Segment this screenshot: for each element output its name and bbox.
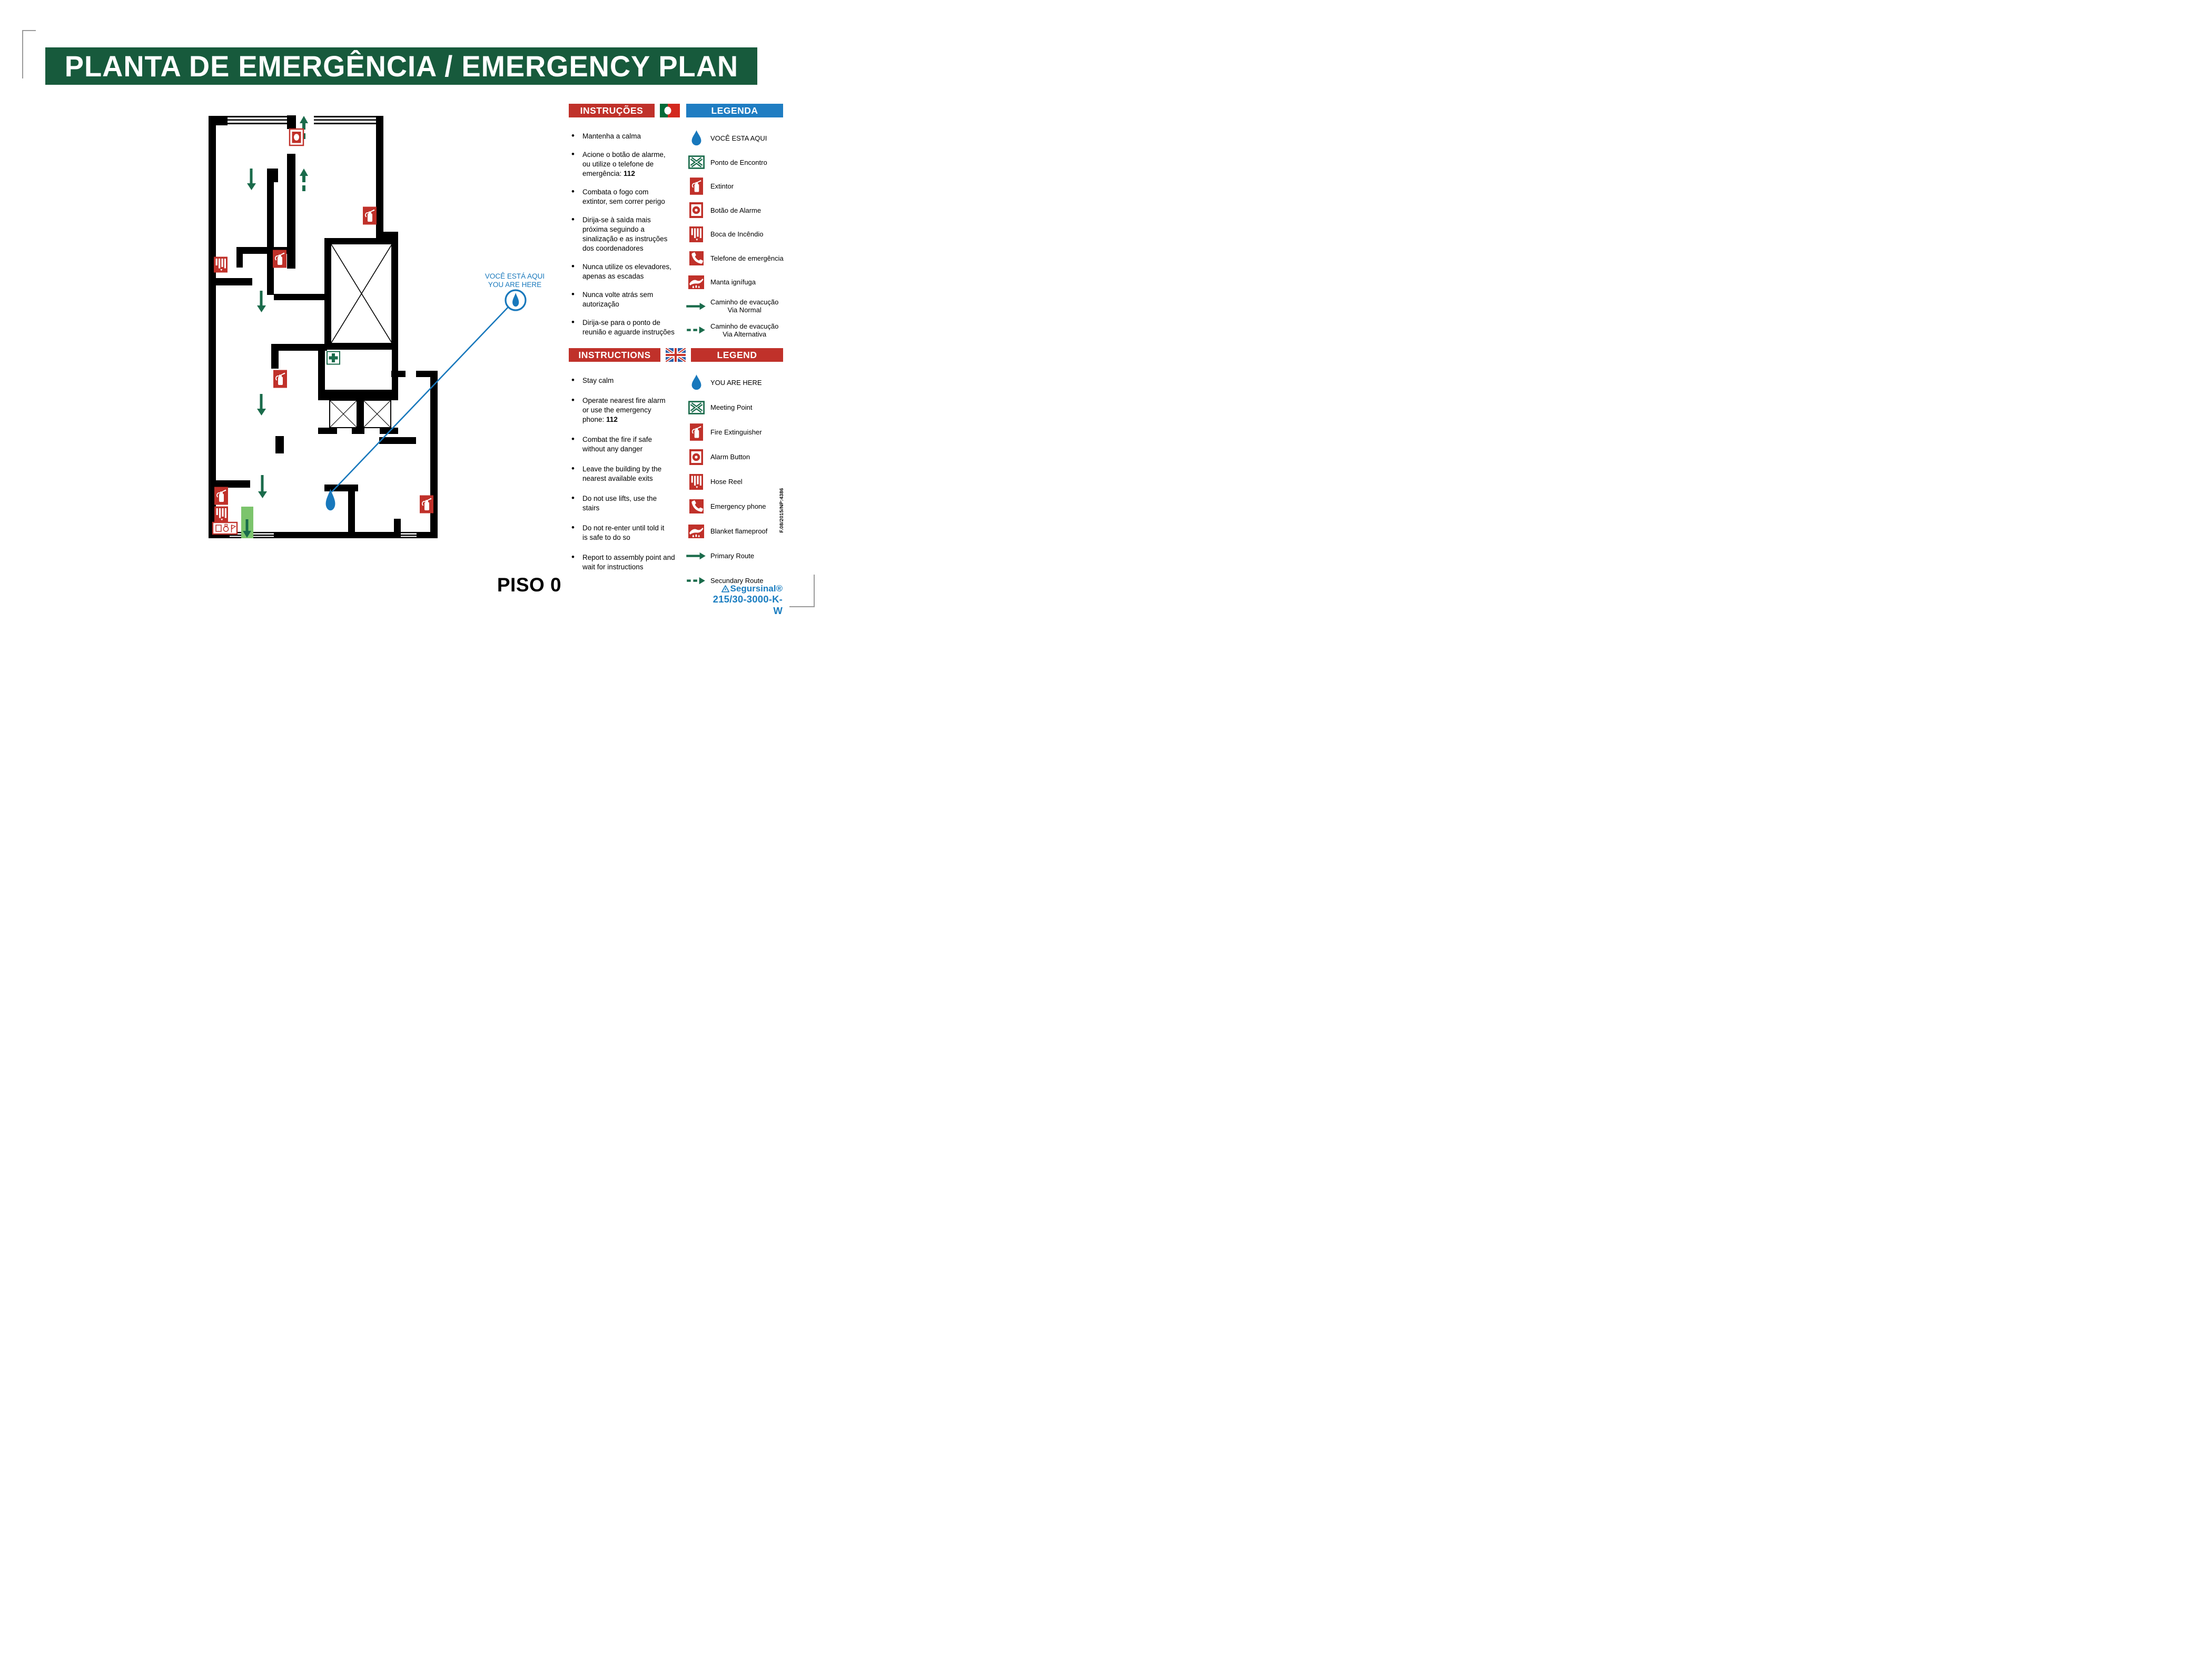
legend-pt-header: LEGENDA — [686, 104, 783, 117]
legend-item: Hose Reel — [684, 469, 792, 494]
alarm-icon — [689, 202, 703, 218]
stairwell-cross — [331, 244, 392, 343]
legend-item: VOCÊ ESTA AQUI — [684, 126, 792, 151]
phone-icon — [689, 499, 704, 513]
instruction-item: Mantenha a calma — [569, 132, 680, 141]
brand-logo: Segursinal® — [716, 584, 783, 594]
manta-icon — [688, 525, 704, 538]
legend-item: Telefone de emergência — [684, 246, 792, 271]
arrow-solid-icon — [686, 552, 706, 560]
instruction-item: Acione o botão de alarme, ou utilize o t… — [569, 150, 680, 179]
you-are-here-marker — [326, 489, 335, 510]
floor-label: PISO 0 — [487, 574, 571, 596]
instruction-item: Dirija-se para o ponto de reunião e agua… — [569, 318, 680, 337]
instruction-item: Stay calm — [569, 376, 680, 386]
hose-reel-icon — [214, 507, 228, 522]
walls — [209, 115, 438, 538]
legend-en-list: YOU ARE HERE Meeting Point Fire Extingui… — [684, 370, 792, 593]
fire-extinguisher-icon — [420, 496, 433, 513]
phone-icon — [689, 251, 704, 265]
alarm-icon — [689, 449, 703, 465]
crop-mark — [814, 575, 815, 607]
portugal-flag-icon — [660, 104, 680, 117]
instruction-item: Combat the fire if safe without any dang… — [569, 435, 680, 454]
instructions-en-list: Stay calmOperate nearest fire alarm or u… — [569, 376, 680, 582]
instruction-item: Dirija-se à saìda mais próxima seguindo … — [569, 215, 680, 253]
legend-item: Emergency phone — [684, 494, 792, 519]
legend-en-header: LEGEND — [691, 348, 783, 362]
drop-icon — [691, 130, 702, 147]
legend-item: Fire Extinguisher — [684, 420, 792, 444]
legend-item: Extintor — [684, 174, 792, 199]
legend-item: Alarm Button — [684, 444, 792, 469]
floor-plan — [205, 111, 563, 550]
instructions-pt-list: Mantenha a calmaAcione o botão de alarme… — [569, 132, 680, 346]
meeting-icon — [688, 155, 705, 169]
hose-icon — [689, 474, 703, 490]
instruction-item: Do not re-enter until told it is safe to… — [569, 523, 680, 542]
crop-mark — [789, 606, 815, 607]
instruction-item: Operate nearest fire alarm or use the em… — [569, 396, 680, 424]
instruction-item: Do not use lifts, use the stairs — [569, 494, 680, 513]
instruction-item: Leave the building by the nearest availa… — [569, 465, 680, 483]
page-title: PLANTA DE EMERGÊNCIA / EMERGENCY PLAN — [45, 47, 757, 85]
you-are-here-label-en: YOU ARE HERE — [471, 281, 558, 289]
brand-name: Segursinal® — [730, 584, 783, 594]
arrow-dash-icon — [686, 577, 706, 585]
document-reference: F.08/2015/NP:4386 — [779, 482, 785, 538]
you-are-here-label-pt: VOCÊ ESTÁ AQUI — [471, 272, 558, 281]
legend-item: Primary Route — [684, 543, 792, 568]
legend-item: Meeting Point — [684, 395, 792, 420]
drop-icon — [691, 374, 702, 391]
hose-reel-icon — [214, 257, 228, 273]
lift-left — [330, 400, 357, 428]
instruction-item: Report to assembly point and wait for in… — [569, 553, 680, 572]
legend-item: Botão de Alarme — [684, 199, 792, 223]
legend-item: Boca de Incêndio — [684, 222, 792, 246]
lift-right — [363, 400, 391, 428]
page-title-text: PLANTA DE EMERGÊNCIA / EMERGENCY PLAN — [64, 49, 738, 83]
windows — [228, 116, 417, 538]
alarm-button-icon — [290, 129, 303, 145]
first-aid-icon — [327, 352, 340, 364]
legend-item: Caminho de evacução Via Alternativa — [684, 318, 792, 342]
legend-item: Blanket flameproof — [684, 519, 792, 543]
uk-flag-icon — [666, 348, 686, 362]
you-are-here-label: VOCÊ ESTÁ AQUI YOU ARE HERE — [471, 272, 558, 289]
you-are-here-badge — [506, 290, 526, 310]
instruction-item: Nunca volte atrás sem autorização — [569, 290, 680, 309]
equipment-sign — [213, 522, 237, 534]
fire-extinguisher-icon — [273, 250, 286, 268]
meeting-icon — [688, 401, 705, 414]
instruction-item: Nunca utilize os elevadores, apenas as e… — [569, 262, 680, 281]
legend-item: Manta ignífuga — [684, 270, 792, 294]
legend-item: YOU ARE HERE — [684, 370, 792, 395]
fire-extinguisher-icon — [273, 370, 287, 388]
crop-mark — [22, 30, 23, 78]
legend-pt-list: VOCÊ ESTA AQUI Ponto de Encontro Extinto… — [684, 126, 792, 342]
product-model: 215/30-3000-K-W — [712, 594, 783, 617]
crop-mark — [22, 30, 36, 31]
arrow-dash-icon — [686, 326, 706, 334]
legend-item: Caminho de evacução Via Normal — [684, 294, 792, 319]
arrow-solid-icon — [686, 302, 706, 310]
hose-icon — [689, 226, 703, 242]
emergency-plan-sign: PLANTA DE EMERGÊNCIA / EMERGENCY PLAN — [0, 0, 826, 629]
manta-icon — [688, 275, 704, 289]
legend-item: Ponto de Encontro — [684, 151, 792, 175]
ext-icon — [690, 423, 703, 441]
fire-extinguisher-icon — [214, 487, 228, 505]
instruction-item: Combata o fogo com extintor, sem correr … — [569, 187, 680, 206]
fire-extinguisher-icon — [363, 207, 377, 225]
instructions-pt-header: INSTRUÇÕES — [569, 104, 655, 117]
instructions-en-header: INSTRUCTIONS — [569, 348, 660, 362]
brand-flame-icon — [721, 585, 729, 592]
ext-icon — [690, 177, 703, 195]
